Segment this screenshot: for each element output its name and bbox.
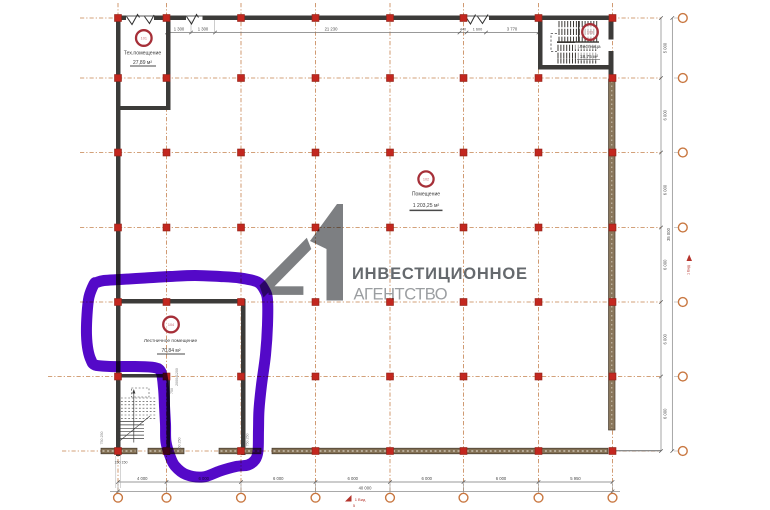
svg-text:6 000: 6 000 (348, 476, 359, 481)
svg-text:18,75 м²: 18,75 м² (580, 54, 599, 60)
svg-text:750 250: 750 250 (100, 432, 104, 445)
svg-text:70,84 м²: 70,84 м² (161, 348, 180, 354)
svg-text:21 230: 21 230 (325, 27, 338, 32)
svg-text:4 000: 4 000 (137, 476, 148, 481)
svg-text:1 300: 1 300 (174, 27, 185, 32)
svg-text:6 000: 6 000 (422, 476, 433, 481)
svg-text:150 150: 150 150 (115, 461, 128, 465)
svg-text:101: 101 (141, 37, 147, 41)
svg-text:750 250: 750 250 (178, 438, 182, 451)
svg-text:АГЕНТСТВО: АГЕНТСТВО (354, 286, 448, 304)
svg-text:35 000: 35 000 (666, 227, 671, 240)
svg-text:ИНВЕСТИЦИОННОЕ: ИНВЕСТИЦИОННОЕ (352, 265, 528, 283)
svg-text:5 000: 5 000 (662, 42, 667, 53)
svg-text:6 000: 6 000 (662, 333, 667, 344)
svg-text:2000х1200: 2000х1200 (175, 368, 179, 386)
svg-text:27,89 м²: 27,89 м² (133, 60, 152, 66)
svg-text:750: 750 (170, 388, 174, 394)
svg-text:Лестничное помещение: Лестничное помещение (144, 338, 198, 344)
svg-text:6 000: 6 000 (662, 408, 667, 419)
svg-text:103: 103 (587, 31, 593, 35)
svg-text:1 Вид: 1 Вид (687, 264, 691, 275)
svg-text:3 770: 3 770 (507, 27, 518, 32)
svg-text:Помещение: Помещение (412, 191, 440, 197)
svg-text:1 Вид: 1 Вид (355, 497, 366, 502)
svg-text:1 600: 1 600 (473, 28, 483, 32)
svg-text:750 250: 750 250 (246, 434, 250, 447)
svg-text:102: 102 (423, 178, 429, 182)
svg-text:Лестница: Лестница (579, 44, 600, 50)
svg-text:6 000: 6 000 (662, 184, 667, 195)
svg-text:1 203,25 м²: 1 203,25 м² (413, 203, 440, 209)
svg-text:40 000: 40 000 (359, 486, 372, 491)
svg-text:1 300: 1 300 (198, 27, 209, 32)
svg-text:440: 440 (460, 28, 466, 32)
svg-text:6 000: 6 000 (496, 476, 507, 481)
svg-text:104: 104 (168, 323, 174, 327)
svg-text:Тех.помещение: Тех.помещение (124, 51, 162, 57)
svg-text:6 000: 6 000 (662, 259, 667, 270)
svg-text:5 950: 5 950 (570, 476, 581, 481)
svg-text:6 000: 6 000 (662, 109, 667, 120)
svg-text:6 000: 6 000 (273, 476, 284, 481)
